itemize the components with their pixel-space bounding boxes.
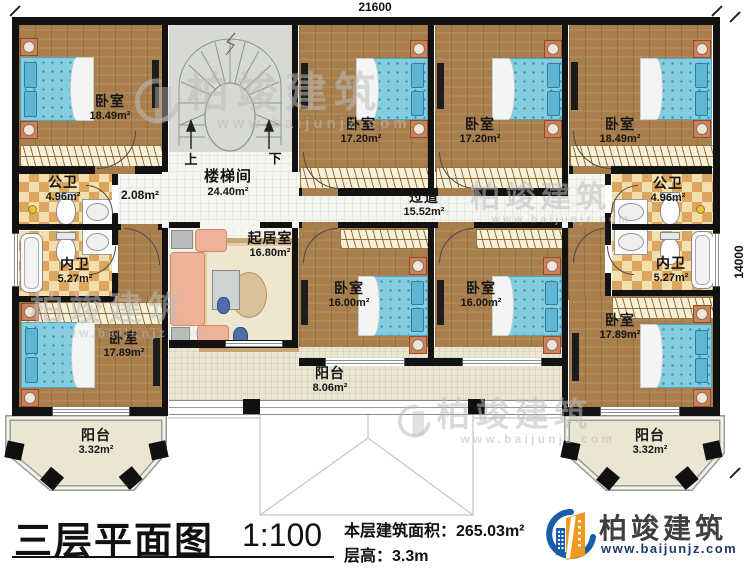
room-name: 卧室 xyxy=(74,331,174,347)
nightstand xyxy=(21,303,39,321)
room-name: 阳台 xyxy=(600,428,700,444)
wall xyxy=(19,166,162,174)
nightstand xyxy=(409,257,427,275)
room-name: 卧室 xyxy=(299,281,399,297)
nightstand xyxy=(410,40,428,58)
nightstand xyxy=(410,120,428,138)
room-name: 起居室 xyxy=(220,231,320,247)
dimension-top: 21600 xyxy=(335,0,415,14)
nightstand xyxy=(693,305,711,323)
dimension-right: 14000 xyxy=(732,232,746,292)
bed xyxy=(356,58,428,120)
window xyxy=(52,407,130,416)
room-area: 3.32m² xyxy=(46,444,146,456)
room-label-bedroom-bottom-left: 卧室 17.89m² xyxy=(74,331,174,359)
railing-post xyxy=(243,399,260,414)
room-area: 5.27m² xyxy=(621,272,721,284)
room-label-bedroom-top-right: 卧室 18.49m² xyxy=(570,117,670,145)
room-name: 卧室 xyxy=(431,281,531,297)
room-area: 4.96m² xyxy=(13,191,113,203)
room-area: 24.40m² xyxy=(178,186,278,198)
floor-area-text: 本层建筑面积：265.03m² xyxy=(344,517,525,541)
room-area: 17.89m² xyxy=(570,329,670,341)
tv-panel xyxy=(301,63,308,109)
nightstand xyxy=(543,257,561,275)
railing-post xyxy=(468,399,485,414)
bay-balconies-and-roof xyxy=(0,400,750,520)
room-name: 卧室 xyxy=(60,94,160,110)
tv-panel xyxy=(571,62,578,110)
room-area: 4.96m² xyxy=(618,192,718,204)
room-label-bedroom-bottom-right: 卧室 17.89m² xyxy=(570,313,670,341)
room-label-bedroom-top-left: 卧室 18.49m² xyxy=(60,94,160,122)
room-label-balcony-left: 阳台 3.32m² xyxy=(46,428,146,456)
dimension-tick xyxy=(9,5,20,16)
bed xyxy=(640,58,712,120)
stair-up-label: 上 xyxy=(183,149,199,168)
wall xyxy=(19,296,115,302)
room-name: 过道 xyxy=(374,190,474,206)
wall xyxy=(162,25,168,172)
nightstand xyxy=(21,389,39,407)
window xyxy=(462,358,542,366)
nightstand xyxy=(693,120,711,138)
room-area: 17.20m² xyxy=(311,133,411,145)
wall xyxy=(562,25,568,196)
wall xyxy=(19,224,115,230)
room-name: 卧室 xyxy=(311,117,411,133)
wall xyxy=(562,228,568,416)
wall xyxy=(612,290,713,296)
door-opening xyxy=(302,222,338,228)
door-opening xyxy=(605,185,611,213)
room-label-corridor: 过道 15.52m² xyxy=(374,190,474,218)
floor-plan: 卧室 18.49m² 卧室 17.20m² 卧室 17.20m² 卧室 18.4… xyxy=(0,0,750,575)
sliding-door xyxy=(225,341,283,347)
closet xyxy=(476,229,563,249)
nightstand xyxy=(544,120,562,138)
floor-height-text: 层高：3.3m xyxy=(344,542,428,566)
dimension-tick xyxy=(711,5,722,16)
room-name: 内卫 xyxy=(621,256,721,272)
tv-panel xyxy=(437,63,444,109)
wall xyxy=(612,224,713,230)
room-area: 8.06m² xyxy=(280,382,380,394)
room-name: 楼梯间 xyxy=(178,169,278,186)
wall xyxy=(162,228,168,416)
room-area: 16.00m² xyxy=(299,297,399,309)
closet xyxy=(340,229,429,249)
balcony-railing xyxy=(169,400,562,415)
nightstand xyxy=(543,336,561,354)
nightstand xyxy=(409,336,427,354)
room-area: 5.27m² xyxy=(25,273,125,285)
hall-area-label: 2.08m² xyxy=(108,188,172,202)
room-label-bedroom-mid1: 卧室 16.00m² xyxy=(299,281,399,309)
room-label-stairwell: 楼梯间 24.40m² xyxy=(178,169,278,198)
room-area: 18.49m² xyxy=(60,110,160,122)
room-area: 15.52m² xyxy=(374,206,474,218)
sofa xyxy=(170,252,205,326)
wall xyxy=(292,25,298,172)
dimension-tick xyxy=(729,11,740,22)
nightstand xyxy=(544,40,562,58)
window xyxy=(600,407,680,416)
nightstand xyxy=(693,389,711,407)
room-label-bedroom-top-mid1: 卧室 17.20m² xyxy=(311,117,411,145)
floor-lamp xyxy=(28,205,37,214)
room-label-balcony-center: 阳台 8.06m² xyxy=(280,366,380,394)
spiral-stair-icon xyxy=(169,25,292,152)
nightstand xyxy=(20,38,38,56)
bed xyxy=(492,58,564,120)
room-area: 3.32m² xyxy=(600,444,700,456)
wall xyxy=(12,17,19,416)
room-label-bathroom-public-right: 公卫 4.96m² xyxy=(618,176,718,204)
nightstand xyxy=(693,40,711,58)
nightstand xyxy=(20,121,38,139)
wall xyxy=(299,222,562,228)
door-opening xyxy=(573,222,605,228)
room-area: 17.20m² xyxy=(430,133,530,145)
wall xyxy=(713,17,720,416)
door-opening xyxy=(438,222,474,228)
room-area: 16.80m² xyxy=(220,247,320,259)
plan-scale: 1:100 xyxy=(242,517,322,554)
room-area: 17.89m² xyxy=(74,347,174,359)
stair-down-label: 下 xyxy=(267,148,283,167)
wall xyxy=(12,17,720,25)
floor-lamp xyxy=(696,205,705,214)
room-label-bathroom-private-left: 内卫 5.27m² xyxy=(25,257,125,285)
room-name: 阳台 xyxy=(46,428,146,444)
room-label-bedroom-mid2: 卧室 16.00m² xyxy=(431,281,531,309)
wall xyxy=(428,25,434,196)
closet xyxy=(20,145,163,168)
room-name: 卧室 xyxy=(570,117,670,133)
title-underline xyxy=(12,556,334,558)
room-area: 16.00m² xyxy=(431,297,531,309)
brand-url: www.baijunjz.com xyxy=(601,541,737,556)
window xyxy=(12,233,19,287)
room-label-bedroom-top-mid2: 卧室 17.20m² xyxy=(430,117,530,145)
room-label-bathroom-private-right: 内卫 5.27m² xyxy=(621,256,721,284)
door-opening xyxy=(200,222,260,228)
door-opening xyxy=(302,188,338,196)
tv-cabinet xyxy=(171,230,193,249)
brand-logo-icon xyxy=(544,504,596,564)
room-name: 内卫 xyxy=(25,257,125,273)
room-name: 公卫 xyxy=(13,175,113,191)
room-label-living-room: 起居室 16.80m² xyxy=(220,231,320,259)
room-name: 阳台 xyxy=(280,366,380,382)
room-name: 公卫 xyxy=(618,176,718,192)
room-name: 卧室 xyxy=(430,117,530,133)
room-area: 18.49m² xyxy=(570,133,670,145)
room-label-bathroom-public-left: 公卫 4.96m² xyxy=(13,175,113,203)
room-label-balcony-right: 阳台 3.32m² xyxy=(600,428,700,456)
person-figure xyxy=(217,297,230,314)
room-name: 卧室 xyxy=(570,313,670,329)
